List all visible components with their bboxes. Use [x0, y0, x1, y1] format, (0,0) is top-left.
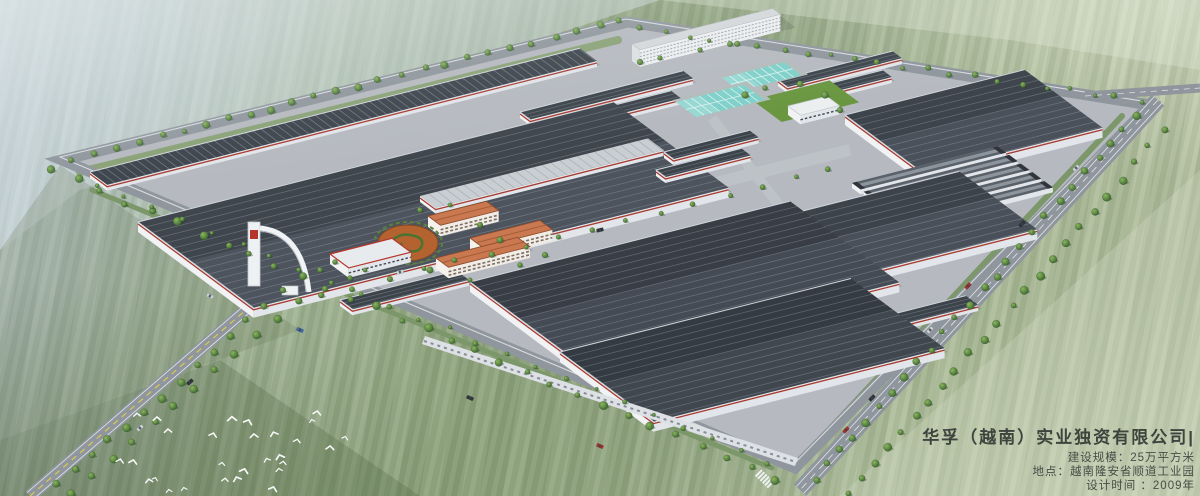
- tree: [1081, 167, 1088, 174]
- tree: [884, 443, 892, 451]
- tree: [964, 348, 972, 356]
- tree: [690, 202, 695, 207]
- aerial-rendering-image: 华孚（越南）实业独资有限公司| 建设规模：25万平方米 地点：越南隆安省顺道工业…: [0, 0, 1200, 496]
- tree: [103, 435, 111, 443]
- tree: [280, 287, 286, 293]
- tree: [440, 61, 448, 69]
- tree: [1140, 100, 1145, 105]
- tree: [210, 231, 214, 235]
- tree: [524, 245, 528, 249]
- tree: [1040, 212, 1047, 219]
- tree: [399, 72, 404, 77]
- tree: [149, 205, 154, 210]
- tree: [824, 460, 830, 466]
- tree: [246, 251, 251, 256]
- tree: [332, 259, 337, 264]
- tree: [626, 412, 633, 419]
- tree: [121, 201, 127, 207]
- tree: [248, 111, 255, 118]
- tree: [299, 272, 307, 280]
- tree: [739, 448, 743, 452]
- tree: [1075, 223, 1082, 230]
- tree: [724, 455, 730, 461]
- tree: [348, 297, 354, 303]
- tree: [473, 341, 478, 346]
- tree: [1049, 255, 1057, 263]
- tree: [422, 266, 427, 271]
- tree: [288, 98, 295, 105]
- tree: [622, 399, 627, 404]
- tree: [495, 359, 503, 367]
- tree: [929, 348, 935, 354]
- tree: [681, 426, 686, 431]
- tree: [1119, 127, 1125, 133]
- tree: [363, 268, 368, 273]
- tree: [318, 292, 324, 298]
- caption-scale-text: 建设规模：25万平方米: [922, 451, 1195, 465]
- tree: [97, 188, 103, 194]
- tree: [128, 439, 135, 446]
- tree: [898, 429, 904, 435]
- tree: [242, 242, 246, 246]
- tree: [770, 476, 779, 485]
- tree: [623, 218, 628, 223]
- tree: [448, 325, 452, 329]
- tree: [110, 455, 118, 463]
- gate-logo-panel: [250, 230, 258, 239]
- tree: [939, 383, 946, 390]
- tree: [449, 338, 455, 344]
- tree: [136, 139, 143, 146]
- tree: [658, 56, 663, 61]
- tree: [274, 315, 282, 323]
- tree: [995, 79, 1000, 84]
- tree: [728, 193, 733, 198]
- tree: [200, 231, 208, 239]
- tree: [1107, 140, 1115, 148]
- tree: [1111, 92, 1117, 98]
- tree: [211, 366, 218, 373]
- tree: [949, 367, 957, 375]
- tree: [852, 56, 857, 61]
- tree: [1057, 197, 1065, 205]
- tree: [1068, 86, 1072, 90]
- tree: [749, 464, 755, 470]
- tree: [123, 424, 131, 432]
- tree: [1102, 193, 1111, 202]
- tree: [825, 166, 831, 172]
- tree: [95, 184, 99, 188]
- tree: [981, 336, 989, 344]
- car: [296, 327, 304, 333]
- caption-location-text: 地点：越南隆安省顺道工业园: [922, 465, 1195, 479]
- tree: [226, 243, 232, 249]
- tree: [322, 286, 328, 292]
- tree: [310, 93, 316, 99]
- tree: [489, 252, 495, 258]
- tree: [141, 409, 148, 416]
- tree: [506, 44, 513, 51]
- tree: [372, 301, 380, 309]
- tree: [533, 365, 537, 369]
- tree: [1029, 229, 1035, 235]
- tree: [836, 446, 843, 453]
- tree: [888, 389, 896, 397]
- tree: [1145, 143, 1150, 148]
- tree: [227, 332, 235, 340]
- tree: [575, 392, 580, 397]
- tree: [821, 91, 828, 98]
- tree: [700, 443, 706, 449]
- tree: [707, 39, 711, 43]
- tree: [271, 263, 277, 269]
- tree: [564, 376, 569, 381]
- tree: [741, 91, 748, 98]
- tree: [1133, 112, 1141, 120]
- tree: [573, 28, 580, 35]
- tree: [387, 276, 393, 282]
- tree: [182, 129, 187, 134]
- tree: [195, 362, 201, 368]
- tree: [47, 165, 55, 173]
- tree: [400, 318, 405, 323]
- tree: [485, 49, 491, 55]
- tree: [242, 317, 248, 323]
- tree: [471, 345, 478, 352]
- tree: [637, 59, 643, 65]
- tree: [616, 17, 622, 23]
- tree: [946, 72, 952, 78]
- tree: [546, 382, 552, 388]
- tree: [122, 195, 126, 199]
- tree: [423, 64, 429, 70]
- tree: [1091, 208, 1098, 215]
- tree: [1011, 303, 1016, 308]
- tree: [464, 54, 470, 60]
- tree: [760, 184, 766, 190]
- tree: [427, 267, 434, 274]
- tree: [913, 358, 920, 365]
- tree: [525, 369, 530, 374]
- tree: [158, 395, 166, 403]
- tree: [994, 273, 1001, 280]
- tree: [332, 87, 340, 95]
- tree: [91, 150, 98, 157]
- tree: [599, 401, 608, 410]
- tree: [939, 329, 944, 334]
- company-name-text: 华孚（越南）实业独资有限公司|: [922, 423, 1195, 448]
- tree: [664, 29, 669, 34]
- tree: [697, 47, 702, 52]
- tree: [794, 174, 799, 179]
- tree: [797, 81, 803, 87]
- tree: [261, 303, 268, 310]
- tree: [1016, 243, 1023, 250]
- tree: [1162, 127, 1169, 134]
- tree: [177, 379, 185, 387]
- tree: [72, 466, 79, 473]
- tree: [1036, 272, 1045, 281]
- tree: [295, 298, 302, 305]
- tree: [169, 402, 177, 410]
- tree: [900, 66, 905, 71]
- tree: [180, 217, 185, 222]
- tree: [425, 323, 434, 332]
- tree: [416, 318, 420, 322]
- bird: [313, 410, 321, 415]
- tree: [734, 41, 740, 47]
- tree: [925, 65, 931, 71]
- tree: [553, 34, 560, 41]
- tree: [966, 301, 974, 309]
- tree: [296, 267, 301, 272]
- tree: [556, 235, 561, 240]
- tree: [805, 51, 811, 57]
- tree: [374, 76, 381, 83]
- tree: [814, 477, 821, 484]
- tree: [75, 175, 83, 183]
- tree: [1062, 239, 1070, 247]
- bird: [309, 419, 315, 423]
- tree: [951, 314, 956, 319]
- tree: [88, 472, 95, 479]
- tree: [329, 280, 334, 285]
- tree: [528, 41, 534, 47]
- tree: [754, 43, 760, 49]
- tree: [68, 157, 74, 163]
- tree: [992, 320, 1000, 328]
- tree: [347, 275, 352, 280]
- tree: [67, 489, 75, 496]
- tree: [1119, 177, 1127, 185]
- tree: [913, 412, 921, 420]
- tree: [160, 132, 166, 138]
- tree: [267, 107, 275, 115]
- tree: [1093, 94, 1097, 98]
- tree: [727, 41, 733, 47]
- tree: [1069, 184, 1076, 191]
- tree: [1131, 159, 1137, 165]
- tree: [267, 254, 271, 258]
- tree: [252, 331, 260, 339]
- tree: [688, 35, 692, 39]
- tree: [317, 267, 323, 273]
- tree: [924, 399, 931, 406]
- tree: [659, 211, 664, 216]
- tree: [211, 349, 218, 356]
- tree: [972, 72, 978, 78]
- tree: [477, 222, 483, 228]
- tree: [645, 422, 653, 430]
- tree: [1020, 82, 1026, 88]
- tree: [981, 283, 989, 291]
- tree: [859, 475, 865, 481]
- tree: [672, 431, 679, 438]
- tree: [1002, 258, 1010, 266]
- tree: [359, 292, 363, 296]
- tree: [872, 460, 880, 468]
- tree: [874, 59, 879, 64]
- tree: [1045, 86, 1049, 90]
- tree: [590, 227, 595, 232]
- tree: [354, 84, 362, 92]
- tree: [637, 25, 643, 31]
- tree: [451, 257, 456, 262]
- tree: [230, 350, 238, 358]
- car: [596, 443, 604, 449]
- tree: [189, 385, 197, 393]
- tree: [652, 413, 656, 417]
- tree: [497, 237, 504, 244]
- tree: [765, 461, 770, 466]
- caption-date-text: 设计时间 ：2009年: [922, 479, 1195, 493]
- tree: [837, 107, 843, 113]
- tree: [448, 203, 453, 208]
- tree: [226, 114, 232, 120]
- tree: [900, 373, 908, 381]
- industrial-park-scene: [0, 0, 1200, 496]
- tree: [861, 419, 869, 427]
- tree: [595, 387, 599, 391]
- tree: [349, 287, 355, 293]
- tree: [849, 435, 856, 442]
- project-caption: 华孚（越南）实业独资有限公司| 建设规模：25万平方米 地点：越南隆安省顺道工业…: [922, 423, 1195, 493]
- tree: [113, 145, 120, 152]
- tree: [89, 452, 95, 458]
- tree: [1020, 286, 1029, 295]
- tree: [762, 85, 767, 90]
- tree: [597, 21, 604, 28]
- car: [466, 395, 474, 401]
- tree: [877, 404, 882, 409]
- tree: [468, 278, 473, 283]
- tree: [783, 48, 788, 53]
- tree: [542, 252, 548, 258]
- tree: [829, 53, 833, 57]
- tree: [846, 491, 852, 496]
- tree: [202, 121, 210, 129]
- tree: [417, 207, 423, 213]
- tree: [505, 352, 509, 356]
- tree: [710, 436, 714, 440]
- tree: [387, 304, 392, 309]
- tree: [52, 480, 60, 488]
- bird: [342, 436, 348, 440]
- tree: [1097, 155, 1103, 161]
- tree: [517, 262, 522, 267]
